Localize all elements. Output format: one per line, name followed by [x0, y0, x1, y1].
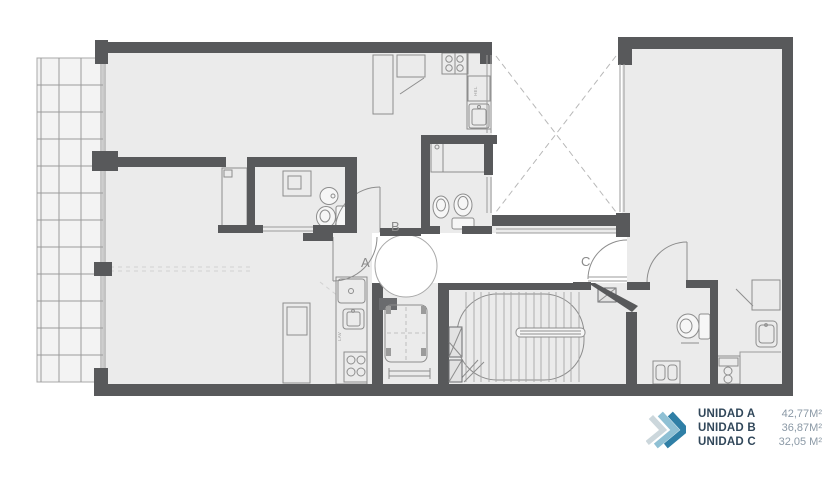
legend-row-unit-b: UNIDAD B 36,87M² — [698, 421, 822, 435]
stair-handrail — [516, 328, 585, 337]
toilet-icon — [454, 194, 472, 216]
legend-row-unit-c: UNIDAD C 32,05 M² — [698, 435, 822, 449]
legend-row-unit-a: UNIDAD A 42,77M² — [698, 407, 822, 421]
legend-value: 32,05 M² — [779, 435, 822, 449]
floorplan-page: HEL LAV — [0, 0, 828, 488]
legend-label: UNIDAD B — [698, 421, 756, 435]
toilet-tank — [699, 314, 710, 339]
sink-label: LAV — [337, 332, 342, 341]
legend-label: UNIDAD A — [698, 407, 755, 421]
legend-rows: UNIDAD A 42,77M² UNIDAD B 36,87M² UNIDAD… — [698, 407, 822, 450]
unit-c-label: C — [581, 254, 590, 269]
air-light-void — [492, 46, 622, 216]
turning-circle — [375, 235, 437, 297]
double-chevron-icon — [646, 409, 686, 451]
legend-value: 36,87M² — [782, 421, 822, 435]
unit-a-label: A — [361, 255, 370, 270]
legend-label: UNIDAD C — [698, 435, 756, 449]
legend-value: 42,77M² — [782, 407, 822, 421]
fridge-label: HEL — [473, 86, 478, 96]
balcony — [37, 58, 103, 382]
unit-b-label: B — [391, 219, 400, 234]
legend: UNIDAD A 42,77M² UNIDAD B 36,87M² UNIDAD… — [646, 407, 822, 451]
